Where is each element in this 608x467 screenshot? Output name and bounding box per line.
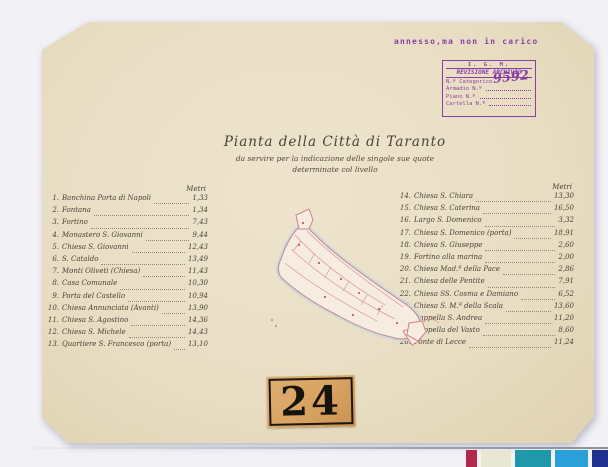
item-value: 7,91 bbox=[558, 277, 574, 285]
item-value: 13,60 bbox=[554, 302, 574, 310]
dotted-leader bbox=[174, 349, 185, 350]
list-item: 1. Banchina Porta di Napoli 1,33 bbox=[46, 194, 208, 206]
item-value: 14,36 bbox=[188, 316, 208, 324]
dotted-leader bbox=[129, 337, 185, 338]
item-value: 2,86 bbox=[558, 265, 574, 273]
item-value: 1,34 bbox=[192, 206, 208, 214]
item-number: 14. bbox=[398, 192, 411, 200]
item-number: 1. bbox=[46, 194, 59, 202]
scanned-map-sheet: annesso,ma non in carico I. G. M. REVISI… bbox=[0, 0, 608, 467]
stamp-field-number: N.º bbox=[472, 86, 482, 92]
plate-number-frame: 24 bbox=[269, 377, 354, 426]
plate-number-label: 24 bbox=[266, 375, 355, 428]
list-item: 13. Quartiere S. Francesco (porta) 13,10 bbox=[46, 340, 208, 352]
list-item: 5. Chiesa S. Giovanni 12,43 bbox=[46, 243, 208, 255]
item-value: 8,60 bbox=[558, 326, 574, 334]
item-value: 13,10 bbox=[188, 340, 208, 348]
dotted-leader bbox=[91, 228, 190, 229]
item-value: 14,43 bbox=[188, 328, 208, 336]
stamp-field-dotted-line bbox=[489, 105, 531, 106]
stamp-field-number: N.º bbox=[466, 94, 476, 100]
item-value: 2,00 bbox=[558, 253, 574, 261]
color-patch-azure bbox=[555, 450, 588, 467]
stamp-field-row: Armadio N.º bbox=[446, 85, 532, 93]
item-value: 3,32 bbox=[558, 216, 574, 224]
title-block: Pianta della Città di Taranto da servire… bbox=[190, 134, 480, 174]
elevation-list-left: 1. Banchina Porta di Napoli 1,33 2. Font… bbox=[46, 194, 208, 352]
item-number: 12. bbox=[46, 328, 59, 336]
item-value: 11,24 bbox=[554, 338, 574, 346]
list-item: 8. Casa Comunale 10,30 bbox=[46, 279, 208, 291]
item-value: 9,44 bbox=[192, 231, 208, 239]
map-title: Pianta della Città di Taranto bbox=[190, 134, 480, 150]
item-number: 4. bbox=[46, 231, 59, 239]
metri-header-left: Metri bbox=[150, 185, 206, 193]
item-number: 7. bbox=[46, 267, 59, 275]
list-item: 3. Fortino 7,43 bbox=[46, 218, 208, 230]
list-item: 4. Monastero S. Giovanni 9,44 bbox=[46, 231, 208, 243]
stamp-field-number: N.º bbox=[476, 101, 486, 107]
list-item: 10. Chiesa Annunciata (Avanti) 13,90 bbox=[46, 304, 208, 316]
stamp-field-dotted-line bbox=[480, 98, 532, 99]
dotted-leader bbox=[162, 313, 185, 314]
list-item: 7. Monti Oliveti (Chiesa) 11,43 bbox=[46, 267, 208, 279]
item-number: 9. bbox=[46, 292, 59, 300]
item-number: 5. bbox=[46, 243, 59, 251]
dotted-leader bbox=[94, 215, 190, 216]
item-name: Chiesa S. Giovanni bbox=[62, 243, 129, 251]
list-item: 2. Fontana 1,34 bbox=[46, 206, 208, 218]
stamp-field-label: Piano bbox=[446, 94, 463, 100]
list-item: 9. Porta del Castello 10,94 bbox=[46, 292, 208, 304]
dotted-leader bbox=[488, 287, 556, 288]
dotted-leader bbox=[143, 276, 185, 277]
item-value: 2,60 bbox=[558, 241, 574, 249]
dotted-leader bbox=[476, 201, 551, 202]
stamp-field-label: Armadio bbox=[446, 86, 469, 92]
list-item: 14. Chiesa S. Chiara 13,30 bbox=[398, 192, 574, 204]
taranto-island-drawing bbox=[255, 205, 440, 365]
item-name: Chiesa Annunciata (Avanti) bbox=[62, 304, 159, 312]
item-name: Fontana bbox=[62, 206, 91, 214]
item-name: Chiesa S. Agostino bbox=[62, 316, 128, 324]
item-name: Monti Oliveti (Chiesa) bbox=[62, 267, 140, 275]
dotted-leader bbox=[521, 299, 555, 300]
archive-stamp: I. G. M. REVISIONE ARCHIVIO N.º Categori… bbox=[442, 60, 536, 117]
map-subtitle-2: determinate col livello bbox=[190, 165, 480, 174]
dotted-leader bbox=[485, 323, 551, 324]
dotted-leader bbox=[485, 226, 556, 227]
item-number: 3. bbox=[46, 218, 59, 226]
item-name: Monastero S. Giovanni bbox=[62, 231, 143, 239]
item-number: 10. bbox=[46, 304, 59, 312]
item-value: 1,33 bbox=[192, 194, 208, 202]
dotted-leader bbox=[132, 252, 185, 253]
document-shadow-wrap: annesso,ma non in carico I. G. M. REVISI… bbox=[0, 0, 608, 467]
list-item: 12. Chiesa S. Michele 14,43 bbox=[46, 328, 208, 340]
item-number: 13. bbox=[46, 340, 59, 348]
dotted-leader bbox=[146, 240, 190, 241]
stamp-field-label: Cartella bbox=[446, 101, 473, 107]
item-name: Banchina Porta di Napoli bbox=[62, 194, 151, 202]
item-value: 13,30 bbox=[554, 192, 574, 200]
dotted-leader bbox=[131, 325, 185, 326]
item-number: 8. bbox=[46, 279, 59, 287]
list-item: 11. Chiesa S. Agostino 14,36 bbox=[46, 316, 208, 328]
color-patch-teal bbox=[515, 450, 551, 467]
metri-header-right: Metri bbox=[516, 183, 572, 191]
dotted-leader bbox=[483, 213, 551, 214]
item-number: 6. bbox=[46, 255, 59, 263]
item-value: 7,43 bbox=[192, 218, 208, 226]
dotted-leader bbox=[128, 301, 185, 302]
color-patch-cream bbox=[481, 450, 511, 467]
item-number: 11. bbox=[46, 316, 59, 324]
dotted-leader bbox=[506, 311, 551, 312]
item-number: 2. bbox=[46, 206, 59, 214]
dotted-leader bbox=[485, 250, 555, 251]
item-value: 10,94 bbox=[188, 292, 208, 300]
color-patch-crimson bbox=[466, 450, 477, 467]
scanner-bed-edge bbox=[0, 447, 608, 449]
item-value: 13,90 bbox=[188, 304, 208, 312]
dotted-leader bbox=[120, 289, 185, 290]
dotted-leader bbox=[101, 264, 185, 265]
item-value: 16,50 bbox=[554, 204, 574, 212]
color-calibration-bar bbox=[466, 450, 608, 467]
list-item: 6. S. Cataldo 13,49 bbox=[46, 255, 208, 267]
dotted-leader bbox=[483, 335, 556, 336]
item-value: 12,43 bbox=[188, 243, 208, 251]
dotted-leader bbox=[514, 238, 551, 239]
archive-note: annesso,ma non in carico bbox=[394, 37, 574, 46]
item-value: 13,49 bbox=[188, 255, 208, 263]
plate-number: 24 bbox=[280, 381, 342, 422]
item-value: 6,52 bbox=[558, 290, 574, 298]
item-name: Chiesa S. Michele bbox=[62, 328, 126, 336]
stamp-field-dotted-line bbox=[486, 90, 531, 91]
item-name: Porta del Castello bbox=[62, 292, 125, 300]
item-name: S. Cataldo bbox=[62, 255, 98, 263]
stamp-field-row: Cartella N.º bbox=[446, 100, 532, 108]
item-name: Quartiere S. Francesco (porta) bbox=[62, 340, 171, 348]
item-value: 10,30 bbox=[188, 279, 208, 287]
item-value: 11,43 bbox=[188, 267, 208, 275]
taranto-city-map bbox=[255, 205, 440, 365]
dotted-leader bbox=[469, 347, 551, 348]
dotted-leader bbox=[485, 262, 555, 263]
item-name: Fortino bbox=[62, 218, 88, 226]
stamp-fields: Armadio N.º Piano N.º Cartella bbox=[446, 85, 532, 108]
stamp-field-row: Piano N.º bbox=[446, 92, 532, 100]
document-sheet: annesso,ma non in carico I. G. M. REVISI… bbox=[42, 22, 594, 443]
dotted-leader bbox=[503, 274, 555, 275]
map-subtitle-1: da servire per la indicazione delle sing… bbox=[190, 154, 480, 163]
item-value: 11,20 bbox=[554, 314, 574, 322]
dotted-leader bbox=[154, 203, 189, 204]
item-name: Chiesa S. Chiara bbox=[414, 192, 473, 200]
item-name: Casa Comunale bbox=[62, 279, 117, 287]
item-value: 18,91 bbox=[554, 229, 574, 237]
color-patch-navy bbox=[592, 450, 608, 467]
